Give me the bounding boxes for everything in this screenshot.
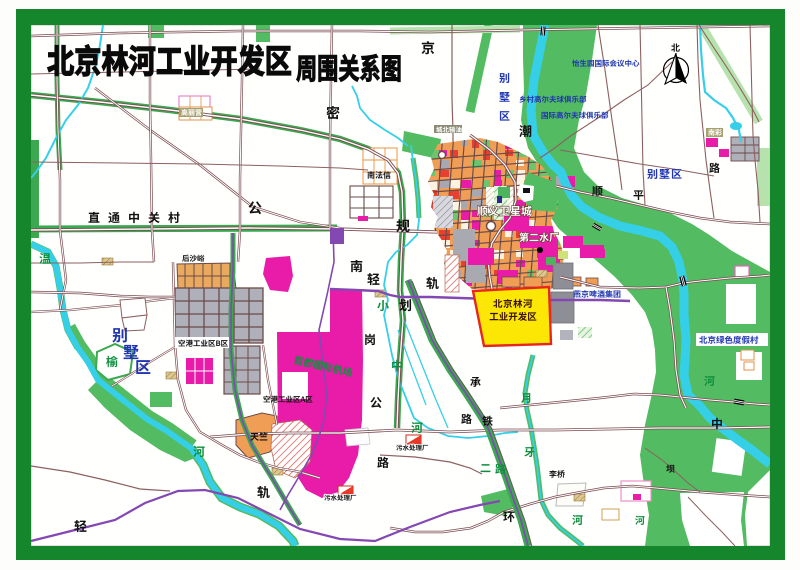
svg-text:京: 京 [421,38,435,58]
svg-text:工业开发区: 工业开发区 [489,309,537,323]
svg-text:直: 直 [88,209,100,226]
svg-text:墅: 墅 [499,89,510,105]
svg-text:环: 环 [503,508,515,525]
svg-text:村: 村 [168,209,180,226]
svg-text:空港工业区B区: 空港工业区B区 [178,338,229,349]
svg-text:岗: 岗 [364,331,376,348]
svg-text:轻: 轻 [367,269,380,288]
svg-text:北京绿色度假村: 北京绿色度假村 [699,334,759,346]
svg-text:河: 河 [572,512,583,528]
svg-text:轻: 轻 [74,516,87,535]
svg-text:北京林河工业开发区: 北京林河工业开发区 [47,35,292,83]
svg-text:乡村高尔夫球俱乐部: 乡村高尔夫球俱乐部 [519,94,587,105]
svg-text:周围关系图: 周围关系图 [296,47,402,88]
svg-text:二: 二 [480,460,491,476]
svg-text:公: 公 [370,394,382,411]
svg-text:平: 平 [633,187,644,203]
svg-text:河: 河 [635,512,645,527]
svg-text:第二水厂: 第二水厂 [519,229,559,244]
svg-text:河: 河 [193,443,205,460]
svg-text:路: 路 [461,411,472,427]
svg-text:别墅区: 别墅区 [647,166,683,182]
svg-text:规: 规 [396,216,410,236]
svg-text:河: 河 [704,373,715,389]
svg-text:河: 河 [411,419,423,436]
svg-text:密: 密 [326,103,340,123]
svg-text:北: 北 [671,41,680,54]
svg-text:关: 关 [148,209,160,226]
svg-text:划: 划 [399,295,412,314]
svg-text:榆: 榆 [106,353,118,370]
svg-text:国际高尔夫球俱乐部: 国际高尔夫球俱乐部 [541,110,609,121]
svg-text:小: 小 [377,297,389,314]
svg-text:温: 温 [39,250,51,267]
svg-text:后沙峪: 后沙峪 [182,253,205,264]
svg-text:高丽营: 高丽营 [181,108,202,118]
svg-text:南: 南 [350,256,363,275]
svg-text:路: 路 [709,160,720,176]
svg-text:中: 中 [391,357,403,374]
svg-text:中: 中 [711,415,723,432]
svg-text:路: 路 [495,461,506,477]
svg-text:区: 区 [499,108,510,124]
svg-text:潮: 潮 [519,121,532,140]
svg-text:中: 中 [128,209,140,226]
svg-text:污水处理厂: 污水处理厂 [324,492,357,502]
svg-text:轨: 轨 [426,273,439,292]
svg-text:通: 通 [108,209,120,226]
svg-text:牙: 牙 [524,444,535,460]
svg-text:坝: 坝 [666,462,675,475]
svg-text:别: 别 [499,70,510,86]
svg-text:承: 承 [470,374,481,390]
svg-text:空港工业区A区: 空港工业区A区 [263,394,313,405]
svg-text:天竺: 天竺 [250,430,268,443]
svg-text:铁: 铁 [482,413,493,429]
svg-text:顺义卫星城: 顺义卫星城 [477,203,532,219]
svg-text:顺: 顺 [592,183,603,199]
svg-text:南彩: 南彩 [708,128,722,138]
svg-text:李桥: 李桥 [549,469,565,480]
svg-text:轨: 轨 [257,482,270,501]
svg-text:污水处理厂: 污水处理厂 [396,442,429,452]
svg-text:北京林河: 北京林河 [493,296,533,310]
svg-text:城北输油: 城北输油 [436,124,463,134]
svg-text:月: 月 [521,390,532,406]
svg-text:怡生园国际会议中心: 怡生园国际会议中心 [572,58,640,69]
svg-text:公: 公 [248,198,262,218]
svg-text:南法信: 南法信 [367,170,391,181]
svg-text:区: 区 [135,354,151,378]
svg-text:路: 路 [377,454,389,471]
svg-text:燕京啤酒集团: 燕京啤酒集团 [573,289,621,300]
